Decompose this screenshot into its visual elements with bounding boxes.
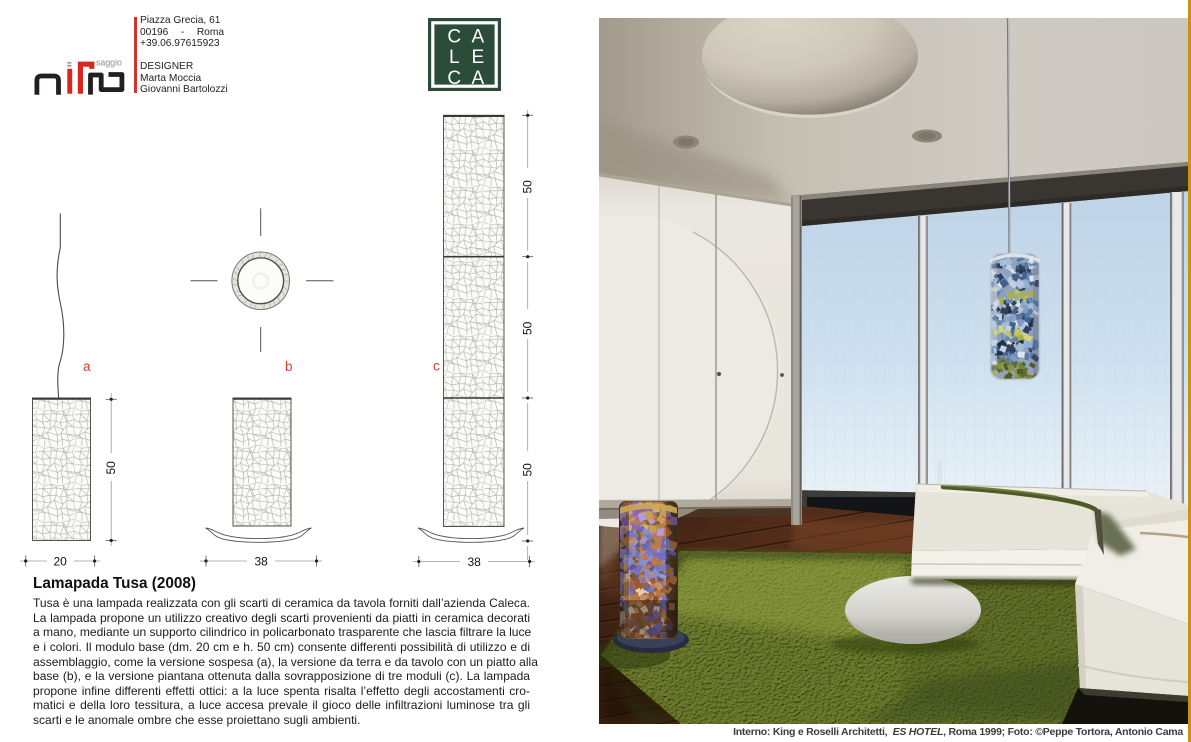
svg-text:20: 20 (54, 555, 68, 569)
svg-text:A: A (471, 68, 484, 89)
svg-text:50: 50 (104, 461, 118, 475)
svg-text:50: 50 (521, 180, 535, 194)
svg-text:saggio: saggio (96, 58, 122, 68)
svg-text:50: 50 (521, 321, 535, 335)
svg-text:A: A (471, 26, 484, 47)
svg-text:L: L (449, 47, 460, 68)
svg-text:38: 38 (255, 555, 269, 569)
svg-text:E: E (471, 47, 484, 68)
svg-text:b: b (285, 359, 293, 374)
svg-text:c: c (433, 359, 440, 374)
svg-text:C: C (447, 26, 461, 47)
svg-text:50: 50 (521, 463, 535, 477)
svg-text:a: a (83, 359, 91, 374)
svg-text:38: 38 (468, 555, 482, 569)
svg-text:C: C (447, 68, 461, 89)
